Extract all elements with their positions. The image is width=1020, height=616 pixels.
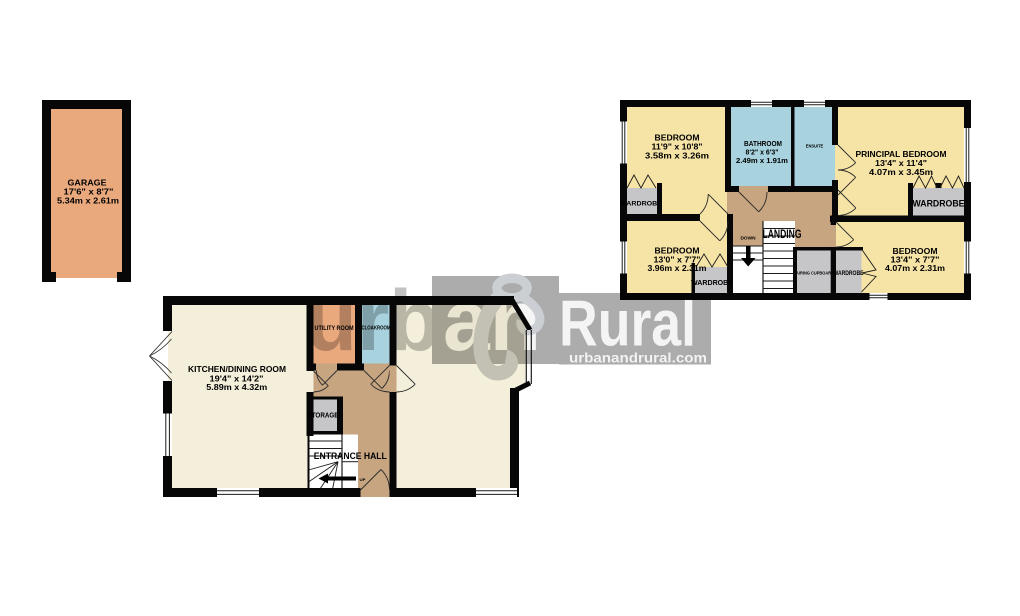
svg-text:ENSUITE: ENSUITE <box>806 144 824 149</box>
svg-text:WARDROBE: WARDROBE <box>834 270 865 277</box>
svg-text:4.07m x 2.31m: 4.07m x 2.31m <box>885 263 945 273</box>
svg-text:2.49m x 1.91m: 2.49m x 1.91m <box>736 158 788 165</box>
svg-text:ENTRANCE HALL: ENTRANCE HALL <box>314 451 387 461</box>
svg-text:WARDROBE: WARDROBE <box>620 201 663 208</box>
svg-text:KITCHEN/DINING ROOM: KITCHEN/DINING ROOM <box>188 364 286 374</box>
svg-text:17'6" x 8'7": 17'6" x 8'7" <box>64 188 114 197</box>
svg-text:8'2" x 6'3": 8'2" x 6'3" <box>746 150 779 157</box>
svg-text:3.58m x 3.26m: 3.58m x 3.26m <box>645 151 709 161</box>
svg-text:STORAGE: STORAGE <box>308 411 339 420</box>
svg-text:UP: UP <box>360 477 366 482</box>
svg-text:WARDROBE: WARDROBE <box>691 278 733 287</box>
svg-text:LANDING: LANDING <box>763 229 802 241</box>
svg-text:5.89m x 4.32m: 5.89m x 4.32m <box>206 383 267 392</box>
svg-text:5.34m x 2.61m: 5.34m x 2.61m <box>57 197 119 206</box>
svg-text:3.96m x 2.31m: 3.96m x 2.31m <box>648 263 707 273</box>
svg-text:GARAGE: GARAGE <box>68 178 107 188</box>
svg-text:4.07m x 3.45m: 4.07m x 3.45m <box>869 167 933 177</box>
svg-text:urb: urb <box>306 273 440 369</box>
svg-text:DOWN: DOWN <box>741 236 756 241</box>
svg-text:urbanandrural.com: urbanandrural.com <box>569 350 707 366</box>
svg-text:AIRING CUPBOARD: AIRING CUPBOARD <box>796 271 834 276</box>
svg-text:BATHROOM: BATHROOM <box>744 139 782 148</box>
svg-text:WARDROBE: WARDROBE <box>913 199 965 210</box>
